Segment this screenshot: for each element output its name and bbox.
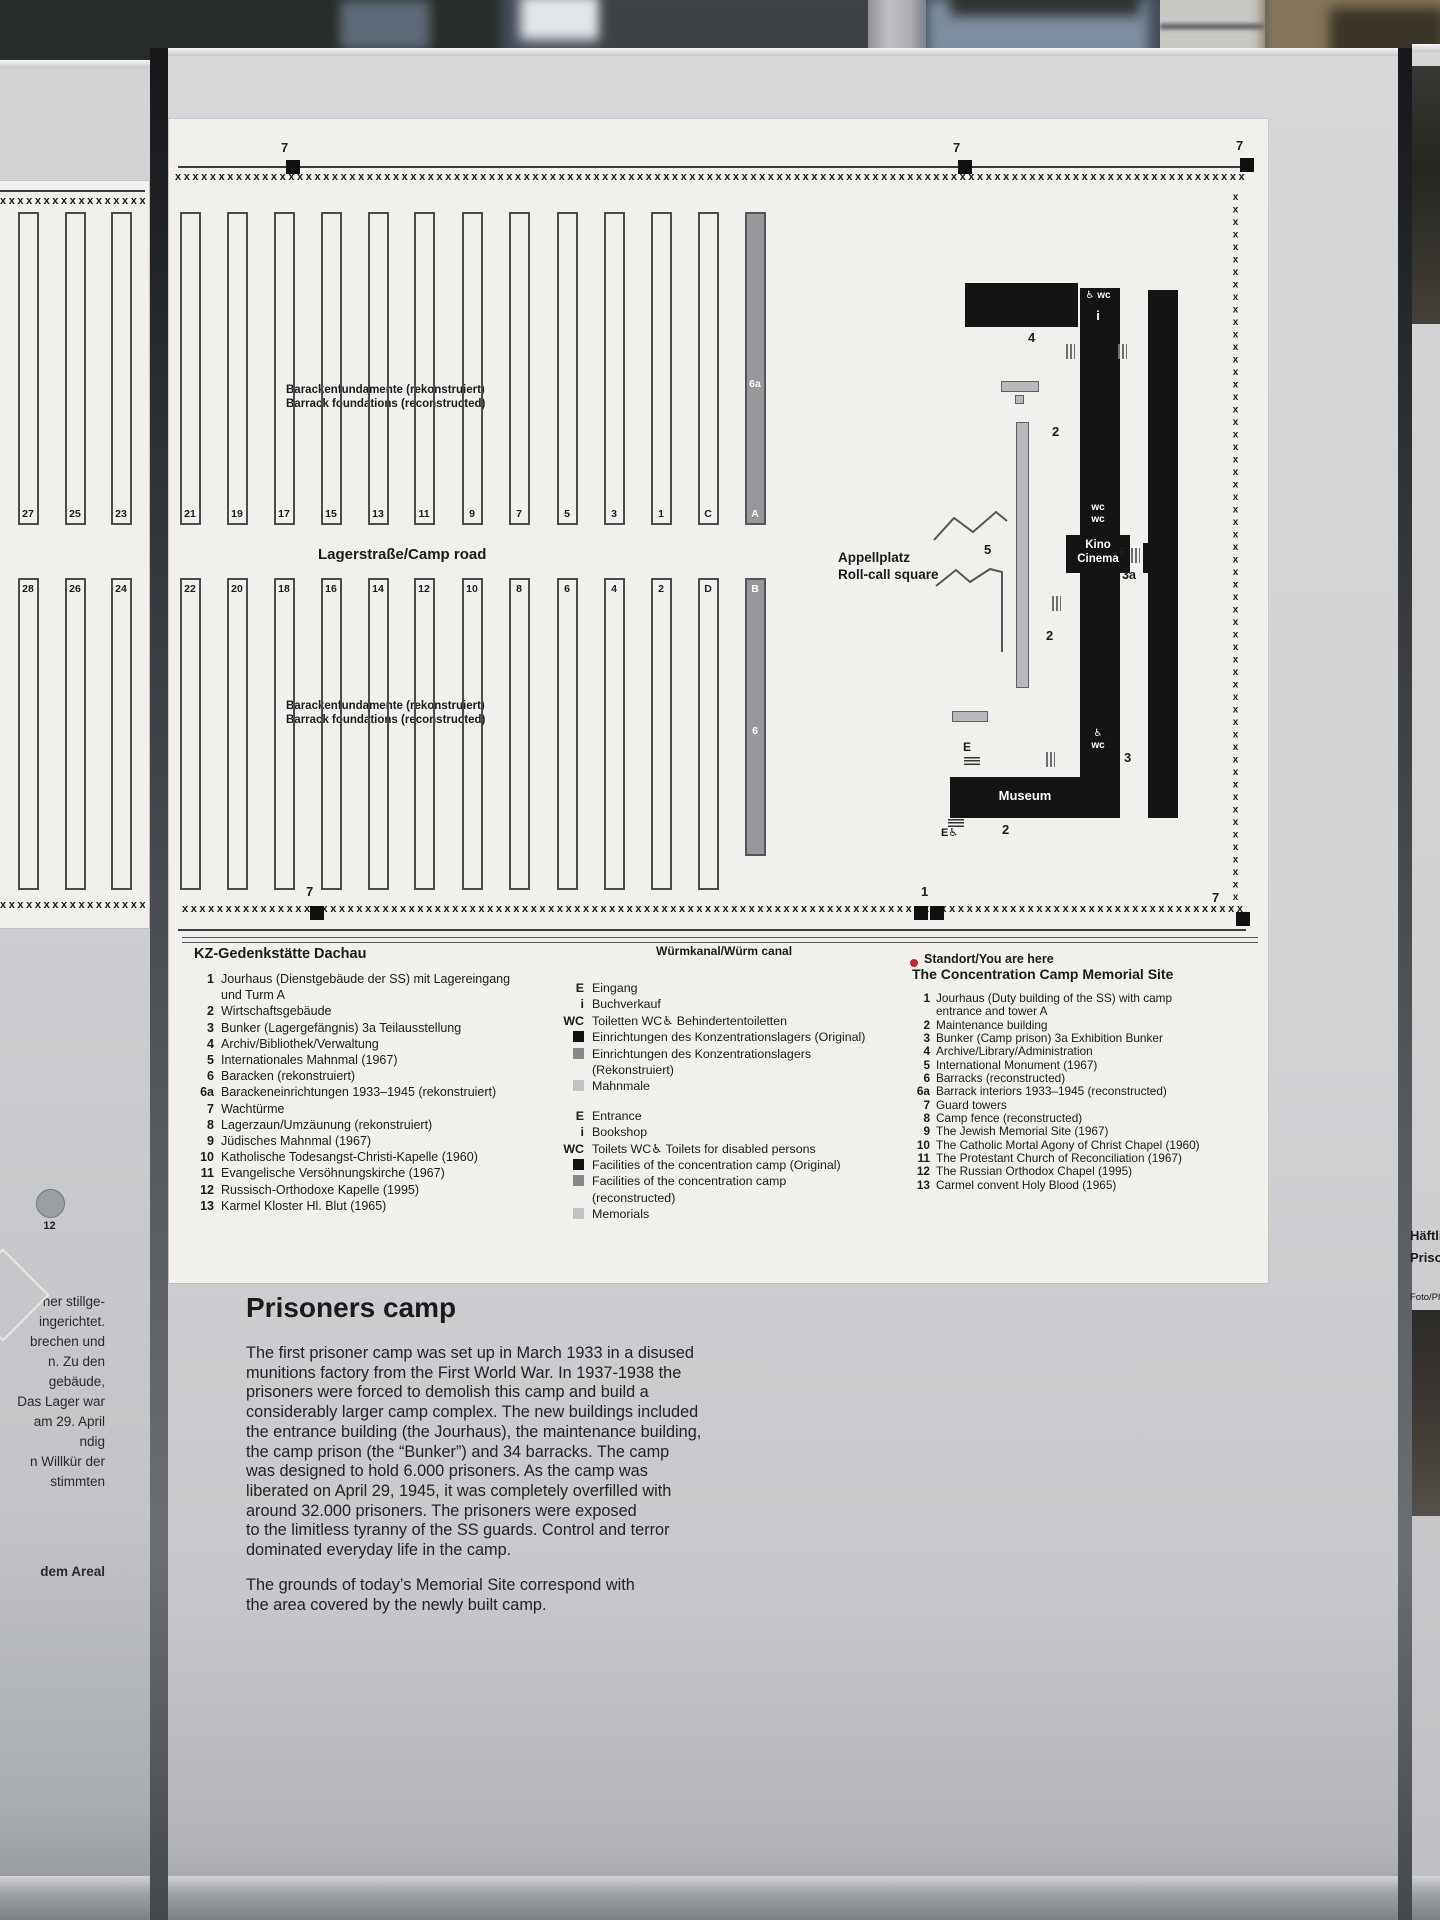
barrack-number: 27: [16, 508, 41, 520]
camp-road-label: Lagerstraße/Camp road: [318, 546, 486, 563]
building-archive: [965, 283, 1078, 327]
legend-item-text: Wachtürme: [221, 1101, 284, 1117]
barrack: 22: [180, 578, 201, 890]
legend-item: 12Russisch-Orthodoxe Kapelle (1995): [194, 1182, 574, 1198]
legend-symbol-text: Eingang: [592, 980, 637, 996]
legend-item-number: 9: [194, 1133, 214, 1149]
legend-german: KZ-Gedenkstätte Dachau 1Jourhaus (Dienst…: [194, 946, 574, 1214]
legend-symbol-item: Memorials: [548, 1206, 898, 1222]
map-number-label: 5: [984, 542, 991, 557]
barrack: 9: [462, 212, 483, 525]
barrack: 8: [509, 578, 530, 890]
legend-item-number: 11: [194, 1165, 214, 1181]
right-panel-caption-fragment: Prison: [1410, 1250, 1440, 1265]
gate-hatch: [1118, 344, 1127, 359]
memorial-structure: [1001, 381, 1039, 392]
gate-hatch: [1052, 596, 1061, 611]
legend-symbol-text: Toiletten WC♿ Behindertentoiletten: [592, 1013, 787, 1029]
legend-symbol-item: EEntrance: [548, 1108, 898, 1124]
barrack-number: 18: [272, 583, 297, 595]
legend-item: 2Wirtschaftsgebäude: [194, 1003, 574, 1019]
sq-light-swatch: [548, 1206, 584, 1222]
barrack-number: 8: [507, 583, 532, 595]
info-point-label: i: [1078, 308, 1118, 323]
map-number-label: 2: [1002, 822, 1009, 837]
legend-item-text: The Protestant Church of Reconciliation …: [936, 1152, 1182, 1165]
wc-label: wc wc: [1078, 502, 1118, 525]
legend-item-number: 7: [912, 1099, 930, 1112]
right-exhibit-panel: [1412, 44, 1440, 1920]
camp-fence: xxxxxxxxxxxxxxxxxxxxxxxxxxxxxxxxxxxxxxxx…: [1226, 192, 1241, 900]
canal-line: [182, 942, 1258, 943]
legend-item: 1Jourhaus (Duty building of the SS) with…: [912, 992, 1272, 1019]
guard-tower-square: [1240, 158, 1254, 172]
barrack-number: A: [743, 508, 768, 520]
legend-german-title: KZ-Gedenkstätte Dachau: [194, 946, 574, 962]
barrack-number: 24: [109, 583, 134, 595]
legend-item-text: Archive/Library/Administration: [936, 1045, 1093, 1058]
legend-item-text: The Russian Orthodox Chapel (1995): [936, 1165, 1132, 1178]
map-number-label: E: [963, 740, 971, 754]
barrack-number: 11: [412, 508, 437, 520]
sq-dark-swatch: [548, 1046, 584, 1062]
barrack: 11: [414, 212, 435, 525]
legend-symbol-text: Entrance: [592, 1108, 642, 1124]
camp-fence: xxxxxxxxxxxxxxxxxxxxxxxxxxxxxxxxxxxxxxxx…: [0, 897, 145, 914]
wc-label: ♿ wc: [1078, 728, 1118, 752]
legend-item: 9Jüdisches Mahnmal (1967): [194, 1133, 574, 1149]
barrack-number: 2: [649, 583, 674, 595]
building-bunker-entrance: [1143, 543, 1177, 573]
barrack: 4: [604, 578, 625, 890]
legend-item-text: Guard towers: [936, 1099, 1007, 1112]
panel-frame-edge: [1412, 44, 1440, 52]
memorial-circle-label: 12: [36, 1220, 63, 1232]
legend-symbol-item: Mahnmale: [548, 1078, 898, 1094]
guard-tower-square: [958, 160, 972, 174]
legend-symbol-text: Toilets WC♿ Toilets for disabled persons: [592, 1141, 816, 1157]
legend-item-number: 12: [912, 1165, 930, 1178]
legend-item-number: 2: [194, 1003, 214, 1019]
barrack-mid-label: 6a: [743, 378, 768, 390]
barrack: 2: [651, 578, 672, 890]
legend-item-text: Maintenance building: [936, 1019, 1048, 1032]
gate-hatch: [1046, 752, 1055, 767]
legend-symbol-item: Einrichtungen des Konzentrationslagers (…: [548, 1046, 898, 1079]
WC-symbol: WC: [548, 1141, 584, 1157]
legend-item-text: International Monument (1967): [936, 1059, 1097, 1072]
barrack: 21: [180, 212, 201, 525]
barrack-number: 22: [178, 583, 203, 595]
camp-wall: [0, 190, 145, 192]
legend-symbol-text: Facilities of the concentration camp (re…: [592, 1173, 786, 1206]
legend-item-text: Barracks (reconstructed): [936, 1072, 1065, 1085]
left-panel-text-fragment: dem Areal: [0, 1564, 105, 1579]
sq-black-swatch: [548, 1157, 584, 1173]
E-symbol: E: [548, 1108, 584, 1124]
legend-item-number: 9: [912, 1125, 930, 1138]
legend-symbol-text: Einrichtungen des Konzentrationslagers (…: [592, 1029, 865, 1045]
legend-symbol-item: WCToiletten WC♿ Behindertentoiletten: [548, 1013, 898, 1029]
legend-item-number: 4: [194, 1036, 214, 1052]
legend-item-text: Jourhaus (Dienstgebäude der SS) mit Lage…: [221, 971, 510, 1003]
legend-item-text: Karmel Kloster Hl. Blut (1965): [221, 1198, 386, 1214]
legend-item: 12The Russian Orthodox Chapel (1995): [912, 1165, 1272, 1178]
legend-item-text: Barrack interiors 1933–1945 (reconstruct…: [936, 1085, 1167, 1098]
legend-item: 5International Monument (1967): [912, 1059, 1272, 1072]
sq-black-swatch: [573, 1031, 584, 1042]
barrack-number: 14: [366, 583, 391, 595]
panel-gap: [150, 48, 168, 1920]
i-symbol: i: [548, 1124, 584, 1140]
barrack: 25: [65, 212, 86, 525]
barrack-number: 20: [225, 583, 250, 595]
legend-symbol-item: EEingang: [548, 980, 898, 996]
gate-hatch: [1066, 344, 1075, 359]
legend-item: 13Karmel Kloster Hl. Blut (1965): [194, 1198, 574, 1214]
legend-item-number: 11: [912, 1152, 930, 1165]
barrack: 10: [462, 578, 483, 890]
barrack-number: 3: [602, 508, 627, 520]
panel-gap: [1398, 48, 1412, 1920]
map-number-label: E: [1119, 545, 1127, 559]
legend-item-number: 8: [912, 1112, 930, 1125]
photo-credit-fragment: Foto/Pho: [1410, 1292, 1440, 1303]
legend-item: 11The Protestant Church of Reconciliatio…: [912, 1152, 1272, 1165]
panel-frame-edge: [168, 48, 1398, 56]
legend-symbol-text: Einrichtungen des Konzentrationslagers (…: [592, 1046, 811, 1079]
legend-symbol-item: iBuchverkauf: [548, 996, 898, 1012]
barrack: 26: [65, 578, 86, 890]
barrack: 24: [111, 578, 132, 890]
legend-item: 6Barracks (reconstructed): [912, 1072, 1272, 1085]
barrack: 14: [368, 578, 389, 890]
legend-item: 6Baracken (rekonstruiert): [194, 1068, 574, 1084]
sq-light-swatch: [573, 1208, 584, 1219]
camp-fence: xxxxxxxxxxxxxxxxxxxxxxxxxxxxxxxxxxxxxxxx…: [182, 901, 1246, 918]
guard-tower-label: 7: [306, 884, 313, 899]
barrack-number: B: [743, 583, 768, 595]
legend-symbols: EEingangiBuchverkaufWCToiletten WC♿ Behi…: [548, 980, 898, 1223]
legend-symbols-english: EEntranceiBookshopWCToilets WC♿ Toilets …: [548, 1108, 898, 1223]
wc-label: ♿ wc: [1078, 290, 1118, 301]
barrack: 7: [509, 212, 530, 525]
barrack: 28: [18, 578, 39, 890]
map-number-label: 2: [1046, 628, 1053, 643]
barrack-number: 9: [460, 508, 485, 520]
barrack: A6a: [745, 212, 766, 525]
barrack: 19: [227, 212, 248, 525]
barrack: B6: [745, 578, 766, 856]
legend-item-number: 6a: [912, 1085, 930, 1098]
barrack: 18: [274, 578, 295, 890]
memorial-circle-marker: [36, 1189, 65, 1218]
barrack-number: 13: [366, 508, 391, 520]
gate-hatch: [1131, 548, 1140, 563]
photographed-information-panel: xxxxxxxxxxxxxxxxxxxxxxxxxxxxxxxxxxxxxxxx…: [0, 0, 1440, 1920]
legend-item: 13Carmel convent Holy Blood (1965): [912, 1179, 1272, 1192]
legend-item: 8Lagerzaun/Umzäunung (rekonstruiert): [194, 1117, 574, 1133]
legend-item-text: The Catholic Mortal Agony of Christ Chap…: [936, 1139, 1200, 1152]
sq-black-swatch: [573, 1159, 584, 1170]
sq-dark-swatch: [573, 1175, 584, 1186]
i-symbol: i: [548, 996, 584, 1012]
barrack: D: [698, 578, 719, 890]
sq-dark-swatch: [573, 1048, 584, 1059]
legend-item: 5Internationales Mahnmal (1967): [194, 1052, 574, 1068]
legend-item-number: 13: [194, 1198, 214, 1214]
sq-light-swatch: [548, 1078, 584, 1094]
guard-tower-label: 7: [953, 140, 960, 155]
article-paragraph: The grounds of today’s Memorial Site cor…: [246, 1576, 806, 1615]
map-number-label: 2: [1052, 424, 1059, 439]
camp-fence: xxxxxxxxxxxxxxxxxxxxxxxxxxxxxxxxxxxxxxxx…: [175, 169, 1246, 186]
legend-item-text: Jourhaus (Duty building of the SS) with …: [936, 992, 1172, 1019]
barrack: 15: [321, 212, 342, 525]
legend-item-text: The Jewish Memorial Site (1967): [936, 1125, 1108, 1138]
legend-item: 3Bunker (Lagergefängnis) 3a Teilausstell…: [194, 1020, 574, 1036]
legend-item: 3Bunker (Camp prison) 3a Exhibition Bunk…: [912, 1032, 1272, 1045]
entrance-hatch: [964, 757, 980, 765]
legend-item-text: Jüdisches Mahnmal (1967): [221, 1133, 371, 1149]
legend-item-number: 1: [912, 992, 930, 1005]
barrack: 16: [321, 578, 342, 890]
right-panel-caption-fragment: Häftlin: [1410, 1228, 1440, 1243]
canal-line: [182, 937, 1258, 938]
legend-english: The Concentration Camp Memorial Site 1Jo…: [912, 966, 1272, 1192]
sq-black-swatch: [548, 1029, 584, 1045]
guard-tower-square: [1236, 912, 1250, 926]
barrack: 3: [604, 212, 625, 525]
barrack-number: 5: [555, 508, 580, 520]
legend-symbols-german: EEingangiBuchverkaufWCToiletten WC♿ Behi…: [548, 980, 898, 1095]
legend-item: 8Camp fence (reconstructed): [912, 1112, 1272, 1125]
museum-label: Museum: [950, 788, 1100, 803]
legend-item: 6aBarackeneinrichtungen 1933–1945 (rekon…: [194, 1084, 574, 1100]
barrack-number: 25: [63, 508, 88, 520]
sq-dark-swatch: [548, 1173, 584, 1189]
legend-symbol-text: Buchverkauf: [592, 996, 661, 1012]
you-are-here-label: Standort/You are here: [924, 952, 1054, 966]
barrack: 5: [557, 212, 578, 525]
panel-frame-edge: [0, 60, 150, 68]
barrack-number: D: [696, 583, 721, 595]
legend-item: 1Jourhaus (Dienstgebäude der SS) mit Lag…: [194, 971, 574, 1003]
barrack-number: 15: [319, 508, 344, 520]
legend-symbol-item: WCToilets WC♿ Toilets for disabled perso…: [548, 1141, 898, 1157]
legend-item-number: 10: [912, 1139, 930, 1152]
guard-tower-square: [914, 906, 928, 920]
barrack-mid-label: 6: [743, 725, 768, 737]
article-paragraph: The first prisoner camp was set up in Ma…: [246, 1344, 806, 1561]
barrack: 20: [227, 578, 248, 890]
legend-item: 11Evangelische Versöhnungskirche (1967): [194, 1165, 574, 1181]
barrack: C: [698, 212, 719, 525]
guard-tower-square: [310, 906, 324, 920]
legend-item: 10The Catholic Mortal Agony of Christ Ch…: [912, 1139, 1272, 1152]
barrack-number: 28: [16, 583, 41, 595]
legend-item: 6aBarrack interiors 1933–1945 (reconstru…: [912, 1085, 1272, 1098]
legend-item: 4Archiv/Bibliothek/Verwaltung: [194, 1036, 574, 1052]
legend-item-text: Russisch-Orthodoxe Kapelle (1995): [221, 1182, 419, 1198]
right-panel-photo: [1412, 1310, 1440, 1516]
legend-item-number: 2: [912, 1019, 930, 1032]
barrack-number: 6: [555, 583, 580, 595]
legend-item: 9The Jewish Memorial Site (1967): [912, 1125, 1272, 1138]
barrack-number: 16: [319, 583, 344, 595]
legend-item-text: Bunker (Camp prison) 3a Exhibition Bunke…: [936, 1032, 1163, 1045]
barrack: 12: [414, 578, 435, 890]
legend-item-text: Barackeneinrichtungen 1933–1945 (rekonst…: [221, 1084, 496, 1100]
WC-symbol: WC: [548, 1013, 584, 1029]
guard-tower-label: 1: [921, 884, 928, 899]
barrack: 13: [368, 212, 389, 525]
legend-item-text: Camp fence (reconstructed): [936, 1112, 1082, 1125]
barrack: 27: [18, 212, 39, 525]
E-symbol: E: [548, 980, 584, 996]
legend-item-number: 8: [194, 1117, 214, 1133]
legend-item-number: 10: [194, 1149, 214, 1165]
legend-item-number: 5: [194, 1052, 214, 1068]
legend-symbol-item: Einrichtungen des Konzentrationslagers (…: [548, 1029, 898, 1045]
barrack: 6: [557, 578, 578, 890]
legend-item-number: 7: [194, 1101, 214, 1117]
right-panel-photo: [1412, 66, 1440, 324]
legend-symbol-text: Facilities of the concentration camp (Or…: [592, 1157, 841, 1173]
post-shadow-line: [1160, 24, 1265, 29]
sky-patch: [340, 0, 430, 50]
memorial-structure: [952, 711, 988, 722]
barrack-number: 23: [109, 508, 134, 520]
legend-symbol-text: Memorials: [592, 1206, 649, 1222]
barrack-number: 10: [460, 583, 485, 595]
barrack-number: 26: [63, 583, 88, 595]
barrack-number: 17: [272, 508, 297, 520]
barrack-number: 12: [412, 583, 437, 595]
legend-item-number: 6: [912, 1072, 930, 1085]
legend-item-text: Lagerzaun/Umzäunung (rekonstruiert): [221, 1117, 432, 1133]
legend-item: 7Wachtürme: [194, 1101, 574, 1117]
guard-tower-square: [930, 906, 944, 920]
map-number-label: E♿: [941, 826, 958, 839]
memorial-structure: [1015, 395, 1024, 404]
barrack-number: 7: [507, 508, 532, 520]
legend-item-number: 6a: [194, 1084, 214, 1100]
guard-tower-square: [286, 160, 300, 174]
barrack-number: 1: [649, 508, 674, 520]
legend-item-number: 12: [194, 1182, 214, 1198]
legend-item-text: Bunker (Lagergefängnis) 3a Teilausstellu…: [221, 1020, 461, 1036]
barrack-number: 21: [178, 508, 203, 520]
monument-wall: [1016, 422, 1029, 688]
legend-item-number: 3: [194, 1020, 214, 1036]
map-number-label: 4: [1028, 330, 1035, 345]
legend-symbol-item: Facilities of the concentration camp (re…: [548, 1173, 898, 1206]
legend-item: 2Maintenance building: [912, 1019, 1272, 1032]
international-monument-sculpture: [916, 504, 1016, 664]
branches: [950, 0, 1140, 16]
panel-bottom-frame: [0, 1876, 1440, 1920]
legend-item: 7Guard towers: [912, 1099, 1272, 1112]
legend-item-text: Carmel convent Holy Blood (1965): [936, 1179, 1116, 1192]
legend-english-items: 1Jourhaus (Duty building of the SS) with…: [912, 992, 1272, 1192]
legend-item-number: 1: [194, 971, 214, 987]
canal-label: Würmkanal/Würm canal: [656, 944, 792, 958]
legend-item-text: Wirtschaftsgebäude: [221, 1003, 331, 1019]
sq-light-swatch: [573, 1080, 584, 1091]
legend-item-number: 6: [194, 1068, 214, 1084]
legend-item-text: Evangelische Versöhnungskirche (1967): [221, 1165, 445, 1181]
map-number-label: 3: [1124, 750, 1131, 765]
legend-symbol-item: iBookshop: [548, 1124, 898, 1140]
legend-symbol-text: Mahnmale: [592, 1078, 650, 1094]
barrack: 23: [111, 212, 132, 525]
guard-tower-label: 7: [1236, 138, 1243, 153]
legend-item-number: 5: [912, 1059, 930, 1072]
article-title: Prisoners camp: [246, 1292, 456, 1324]
barrack-number: C: [696, 508, 721, 520]
legend-item-text: Internationales Mahnmal (1967): [221, 1052, 398, 1068]
barrack: 17: [274, 212, 295, 525]
guard-tower-label: 7: [1212, 890, 1219, 905]
legend-item: 4Archive/Library/Administration: [912, 1045, 1272, 1058]
barrack-number: 4: [602, 583, 627, 595]
guard-tower-label: 7: [281, 140, 288, 155]
legend-item-text: Archiv/Bibliothek/Verwaltung: [221, 1036, 379, 1052]
camp-wall: [178, 929, 1246, 931]
camp-wall: [178, 166, 1246, 168]
legend-item-number: 13: [912, 1179, 930, 1192]
map-number-label: 3a: [1122, 568, 1136, 582]
legend-german-items: 1Jourhaus (Dienstgebäude der SS) mit Lag…: [194, 971, 574, 1214]
legend-item-text: Katholische Todesangst-Christi-Kapelle (…: [221, 1149, 478, 1165]
legend-item-number: 3: [912, 1032, 930, 1045]
legend-item: 10Katholische Todesangst-Christi-Kapelle…: [194, 1149, 574, 1165]
legend-symbol-text: Bookshop: [592, 1124, 647, 1140]
barrack: 1: [651, 212, 672, 525]
camp-fence: xxxxxxxxxxxxxxxxxxxxxxxxxxxxxxxxxxxxxxxx…: [0, 193, 145, 210]
bright-sky-patch: [520, 0, 605, 40]
legend-symbol-item: Facilities of the concentration camp (Or…: [548, 1157, 898, 1173]
legend-item-number: 4: [912, 1045, 930, 1058]
legend-english-title: The Concentration Camp Memorial Site: [912, 966, 1272, 982]
barrack-number: 19: [225, 508, 250, 520]
legend-item-text: Baracken (rekonstruiert): [221, 1068, 355, 1084]
